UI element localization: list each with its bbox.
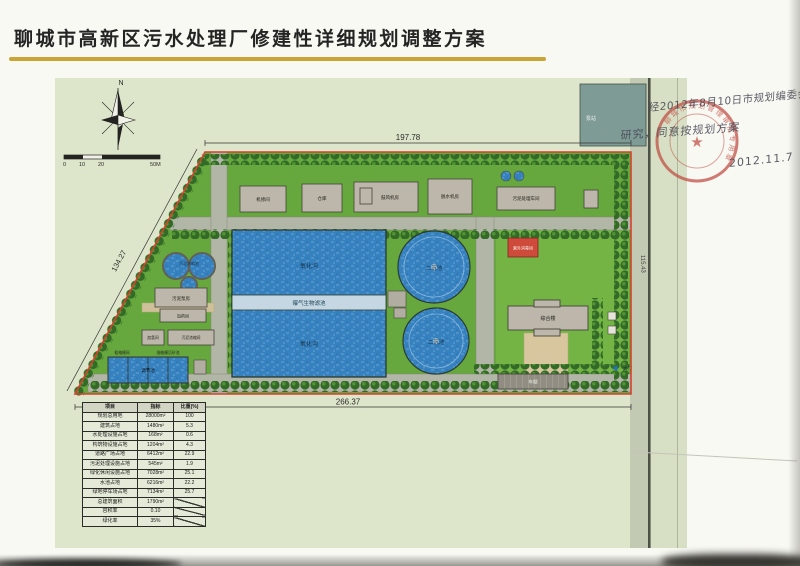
office-label: 综合楼 <box>540 315 555 322</box>
table-cell: 容积率 <box>83 507 138 517</box>
table-cell: 总建筑面积 <box>83 498 138 508</box>
carport-label: 车棚 <box>529 379 538 386</box>
carport: 车棚 <box>498 374 568 389</box>
indicator-table-wrap: 项目指标比重(%) 规划总用地28000m²100建筑占地1480m²5.3水处… <box>82 402 206 527</box>
clarifier1-label: 二沉池 <box>426 264 443 272</box>
table-cell: 水池占地 <box>83 479 138 489</box>
scan-smudge-right <box>662 554 800 566</box>
building-b5-label: 污泥处理车间 <box>513 195 540 202</box>
uv-building-label: 紫外消毒间 <box>513 245 533 251</box>
table-cell: 168m² <box>138 431 174 441</box>
guard-box-2 <box>608 326 616 334</box>
table-cell: 构筑物设施占地 <box>83 441 138 451</box>
table-cell: 35% <box>138 517 174 527</box>
inlet-pool-label: 调节池 <box>141 367 155 374</box>
indicator-table-header: 项目指标比重(%) <box>83 403 206 413</box>
clarifier2-label: 二沉池 <box>428 338 445 346</box>
table-cell: 100 <box>174 412 206 422</box>
table-cell: 1.9 <box>174 460 206 470</box>
chlorine-label: 加氯间 <box>147 335 159 340</box>
uv-building: 紫外消毒间 <box>508 238 538 257</box>
table-cell: 建筑占地 <box>83 422 138 432</box>
aeration-channel-label: 曝气生物滤池 <box>292 299 326 307</box>
table-cell: 1790m² <box>138 498 174 508</box>
scale-tick-50: 50M <box>150 162 161 168</box>
table-cell: 6412m² <box>138 450 174 460</box>
scale-tick-20: 20 <box>98 162 104 168</box>
building-b1-label: 机修间 <box>256 196 270 203</box>
table-row: 容积率0.10 <box>83 507 206 517</box>
north-parcel-label: 泵站 <box>586 115 596 122</box>
table-row: 水池占地6216m²22.2 <box>83 479 206 489</box>
dimension-right: 115.43 <box>639 255 646 274</box>
table-row: 绿地停车场占地7134m²25.7 <box>83 488 206 498</box>
table-cell: 0.6 <box>174 431 206 441</box>
screen-label: 粗格栅间 <box>114 350 129 355</box>
dimension-top: 197.78 <box>396 133 421 142</box>
table-cell <box>174 507 206 517</box>
road-edge-line <box>648 78 651 548</box>
east-road <box>630 78 651 548</box>
building-b4-label: 脱水机房 <box>441 193 459 200</box>
compass-north-label: N <box>118 80 123 87</box>
table-row: 绿化率35% <box>83 517 206 527</box>
table-cell: 25.1 <box>174 469 206 479</box>
table-row: 道路广场占地6412m²22.9 <box>83 450 206 460</box>
table-cell: 7028m² <box>138 469 174 479</box>
table-cell: 22.2 <box>174 479 206 489</box>
dosing-label: 加药间 <box>177 313 189 319</box>
table-header-cell: 比重(%) <box>174 403 206 413</box>
table-row: 水处理设施占地168m²0.6 <box>83 431 206 441</box>
scan-smudge-left <box>0 559 182 566</box>
table-row: 规划总用地28000m²100 <box>83 412 206 422</box>
scan-edge-right <box>788 0 800 566</box>
table-row: 绿化休闲设施占地7028m²25.1 <box>83 469 206 479</box>
table-cell: 0.10 <box>138 507 174 517</box>
dimension-bottom: 266.37 <box>336 398 361 407</box>
scale-tick-10: 10 <box>79 162 85 168</box>
table-cell: 25.7 <box>174 488 206 498</box>
table-cell: 1204m² <box>138 441 174 451</box>
table-cell: 28000m² <box>138 412 174 422</box>
table-header-cell: 项目 <box>83 403 138 413</box>
indicator-table: 项目指标比重(%) 规划总用地28000m²100建筑占地1480m²5.3水处… <box>82 402 206 527</box>
table-cell: 水处理设施占地 <box>83 431 138 441</box>
table-cell: 绿化休闲设施占地 <box>83 469 138 479</box>
table-cell: 污泥处理设施占地 <box>83 460 138 470</box>
table-cell: 4.3 <box>174 441 206 451</box>
oxidation-pools: 氧化沟 曝气生物滤池 氧化沟 <box>232 230 386 377</box>
thickening-label: 污泥浓缩间 <box>182 335 201 340</box>
table-row: 建筑占地1480m²5.3 <box>83 422 206 432</box>
table-cell: 绿地停车场占地 <box>83 488 138 498</box>
table-cell: 5.3 <box>174 422 206 432</box>
table-cell <box>174 517 206 527</box>
sludge-tank-1 <box>501 171 511 181</box>
table-cell: 7134m² <box>138 488 174 498</box>
building-b3-label: 鼓风机房 <box>381 194 399 201</box>
oxidation-bottom-label: 氧化沟 <box>300 340 318 348</box>
grit-label: 细格栅沉砂池 <box>157 350 180 355</box>
sludge-pump-label: 污泥泵房 <box>172 295 190 302</box>
table-cell: 6216m² <box>138 479 174 489</box>
table-row: 污泥处理设施占地545m²1.9 <box>83 460 206 470</box>
sludge-thickener-label: 污泥浓缩池 <box>179 260 199 266</box>
table-header-cell: 指标 <box>138 403 174 413</box>
table-cell: 规划总用地 <box>83 412 138 422</box>
table-cell: 绿化率 <box>83 517 138 527</box>
table-row: 构筑物设施占地1204m²4.3 <box>83 441 206 451</box>
gate-icon: ◀ <box>612 365 618 372</box>
sludge-tank-2 <box>514 171 524 181</box>
table-cell: 22.9 <box>174 450 206 460</box>
scanned-plan-page: 聊城市高新区污水处理厂修建性详细规划调整方案 <box>0 0 800 566</box>
guard-box-1 <box>608 312 616 320</box>
table-row: 总建筑面积1790m² <box>83 498 206 508</box>
road-secondary-line <box>677 78 678 548</box>
scale-tick-0: 0 <box>63 162 66 168</box>
table-cell: 道路广场占地 <box>83 450 138 460</box>
building-b2-label: 仓库 <box>318 195 327 202</box>
table-cell: 545m² <box>138 460 174 470</box>
table-cell: 1480m² <box>138 422 174 432</box>
oxidation-top-label: 氧化沟 <box>300 262 318 270</box>
table-cell <box>174 498 206 508</box>
